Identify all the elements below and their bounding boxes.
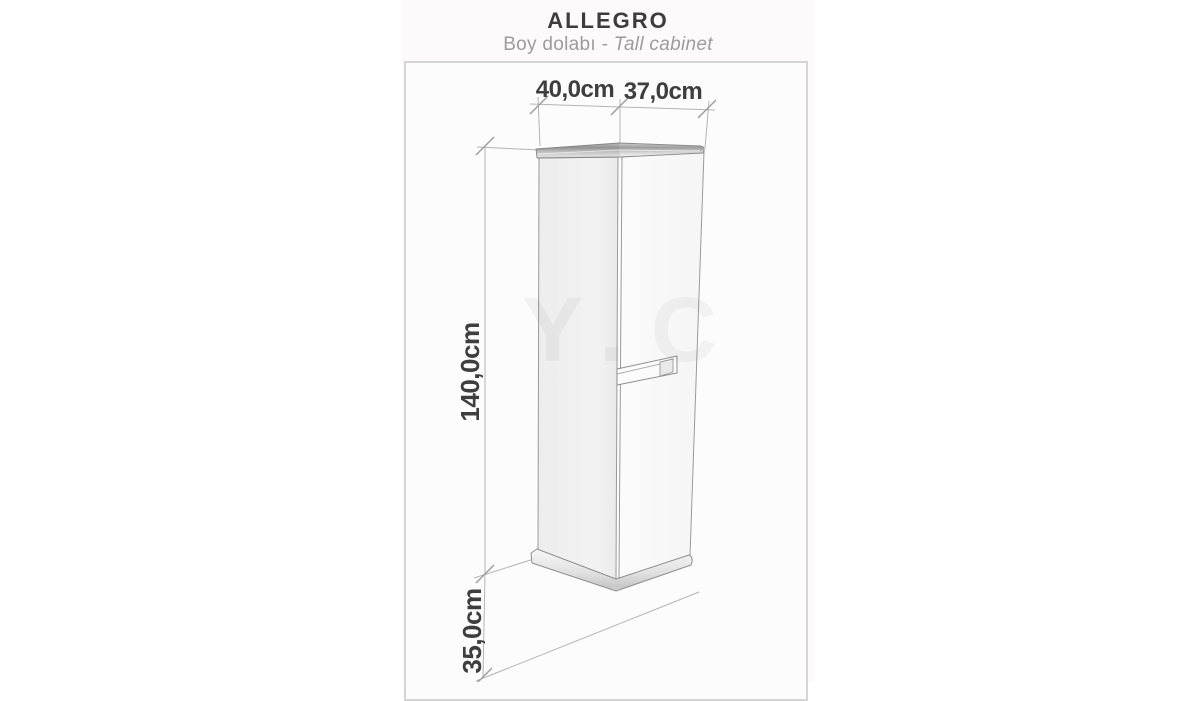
floor-line [476,592,699,681]
cabinet-dimension-drawing: 40,0cm 37,0cm 140,0cm 35,0cm [0,0,1200,682]
dimension-label-top-depth: 37,0cm [624,78,702,105]
subtitle-turkish: Boy dolabı [503,34,596,55]
cabinet [531,143,704,591]
dimension-label-top-width: 40,0cm [536,76,614,103]
product-header: ALLEGRO Boy dolabı - Tall cabinet [402,8,814,56]
dimension-label-floor-clearance: 35,0cm [457,588,487,673]
height-extension-line-top [477,147,540,150]
dimension-label-height: 140,0cm [455,322,485,421]
product-title: ALLEGRO [402,8,814,34]
product-subtitle: Boy dolabı - Tall cabinet [402,34,814,56]
subtitle-english: Tall cabinet [614,34,713,55]
cabinet-side-panel [538,157,618,580]
subtitle-separator: - [596,34,614,55]
